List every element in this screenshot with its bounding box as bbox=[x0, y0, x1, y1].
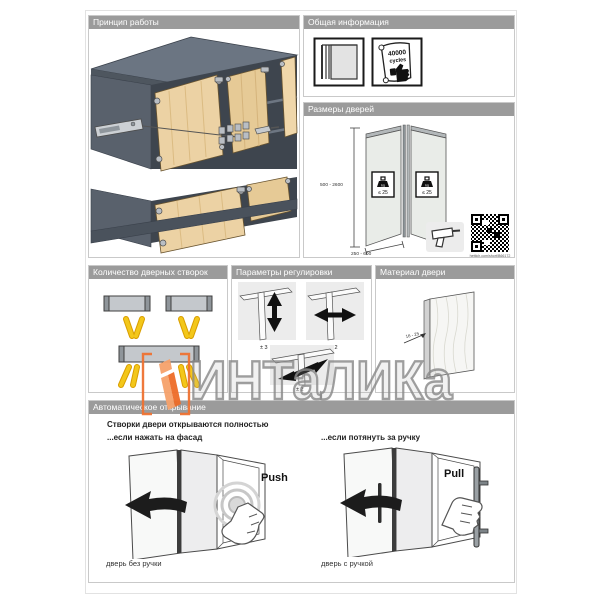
panel-title: Количество дверных створок bbox=[89, 266, 227, 279]
push-condition: ...если нажать на фасад bbox=[107, 433, 202, 442]
drill-icon bbox=[426, 222, 464, 252]
door-leaf bbox=[227, 67, 269, 153]
push-illustration: Push bbox=[99, 447, 299, 559]
panel-title: Принцип работы bbox=[89, 16, 299, 29]
panel-title: Размеры дверей bbox=[304, 103, 514, 116]
folding-leaves-symbol bbox=[126, 319, 197, 336]
svg-text:≤ 25: ≤ 25 bbox=[422, 190, 432, 196]
panel-door-sizes: Размеры дверей 500 - 2600 250 - 600 kg ≤… bbox=[303, 102, 515, 258]
width-range-label: 250 - 600 bbox=[351, 251, 372, 257]
vertical-adjustment-diagram: ± 3 bbox=[238, 282, 296, 351]
svg-text:kg: kg bbox=[381, 184, 385, 188]
svg-text:≤ 25: ≤ 25 bbox=[378, 190, 388, 196]
panel-door-material: Материал двери 16 - 25 bbox=[375, 265, 515, 393]
leaf-count-diagram bbox=[89, 279, 227, 392]
thickness-range-label: 16 - 25 bbox=[405, 331, 420, 339]
push-label: Push bbox=[261, 472, 288, 484]
height-range-label: 500 - 2600 bbox=[320, 182, 343, 188]
push-caption: дверь без ручки bbox=[106, 559, 162, 568]
svg-text:kg: kg bbox=[425, 184, 429, 188]
pull-caption: дверь с ручкой bbox=[321, 559, 373, 568]
pull-label: Pull bbox=[444, 468, 464, 480]
adjust-depth-value: ± 2 bbox=[296, 387, 304, 392]
horizontal-adjustment-diagram: ± 2 bbox=[306, 282, 364, 351]
qr-code bbox=[469, 212, 511, 254]
panel-general-info: Общая информация 40000 cycles bbox=[303, 15, 515, 97]
panel-title: Материал двери bbox=[376, 266, 514, 279]
panel-operating-principle: Принцип работы bbox=[88, 15, 300, 258]
instruction-sheet: { "watermark": { "text": "ИНТаЛИКа" }, "… bbox=[0, 0, 600, 600]
adjustment-diagrams: ± 3 ± 2 ± 2 bbox=[232, 279, 371, 392]
pull-condition: ...если потянуть за ручку bbox=[321, 433, 420, 442]
door-material-illustration: 16 - 25 bbox=[376, 279, 514, 392]
weight-limit-badge: kg ≤ 25 bbox=[372, 172, 394, 197]
panel-adjustment: Параметры регулировки ± 3 ± 2 bbox=[231, 265, 372, 393]
auto-opening-headline: Створки двери открываются полностью bbox=[107, 420, 269, 429]
info-link: hettich.com/short/B66172 bbox=[470, 254, 511, 257]
panel-leaf-count: Количество дверных створок bbox=[88, 265, 228, 393]
door-sizes-illustration: 500 - 2600 250 - 600 kg ≤ 25 kg ≤ 25 bbox=[304, 116, 514, 257]
adjust-vertical-value: ± 3 bbox=[260, 345, 268, 351]
folding-leaves-symbol bbox=[121, 367, 197, 385]
cycles-certificate-icon: 40000 cycles bbox=[371, 37, 423, 87]
weight-limit-badge: kg ≤ 25 bbox=[416, 172, 438, 197]
panel-title: Автоматическое открывание bbox=[89, 401, 514, 414]
catalog-book-icon bbox=[313, 37, 365, 87]
depth-adjustment-diagram: ± 2 bbox=[270, 345, 334, 392]
pull-illustration: Pull bbox=[314, 445, 514, 557]
panel-title: Общая информация bbox=[304, 16, 514, 29]
panel-title: Параметры регулировки bbox=[232, 266, 371, 279]
cabinet-illustration bbox=[89, 29, 299, 257]
panel-auto-opening: Автоматическое открывание Створки двери … bbox=[88, 400, 515, 583]
